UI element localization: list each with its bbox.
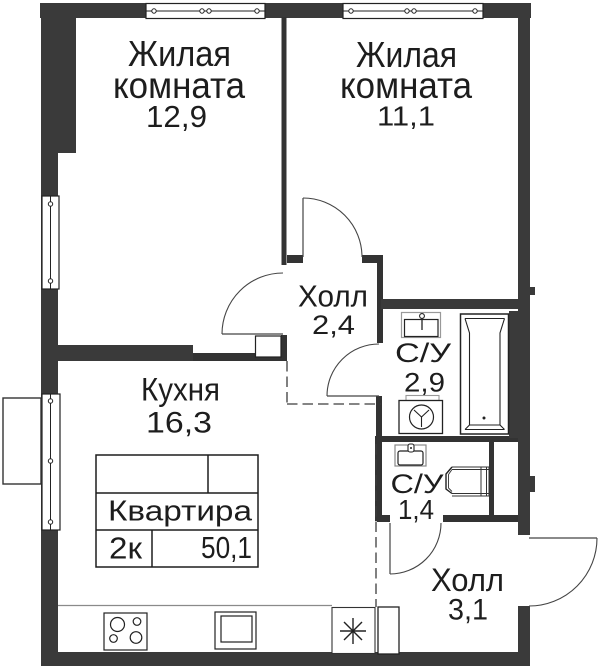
svg-text:12,9: 12,9	[146, 99, 207, 134]
svg-text:2к: 2к	[109, 531, 142, 566]
svg-text:50,1: 50,1	[201, 530, 252, 565]
svg-text:2,9: 2,9	[404, 368, 445, 398]
svg-text:Холл: Холл	[298, 279, 368, 314]
svg-text:3,1: 3,1	[448, 594, 488, 627]
svg-text:Кухня: Кухня	[141, 372, 220, 408]
svg-text:Квартира: Квартира	[108, 496, 252, 528]
svg-text:1,4: 1,4	[398, 494, 434, 525]
svg-text:С/У: С/У	[395, 338, 452, 368]
svg-text:11,1: 11,1	[377, 101, 435, 132]
svg-text:16,3: 16,3	[146, 407, 212, 440]
svg-text:2,4: 2,4	[312, 310, 355, 340]
